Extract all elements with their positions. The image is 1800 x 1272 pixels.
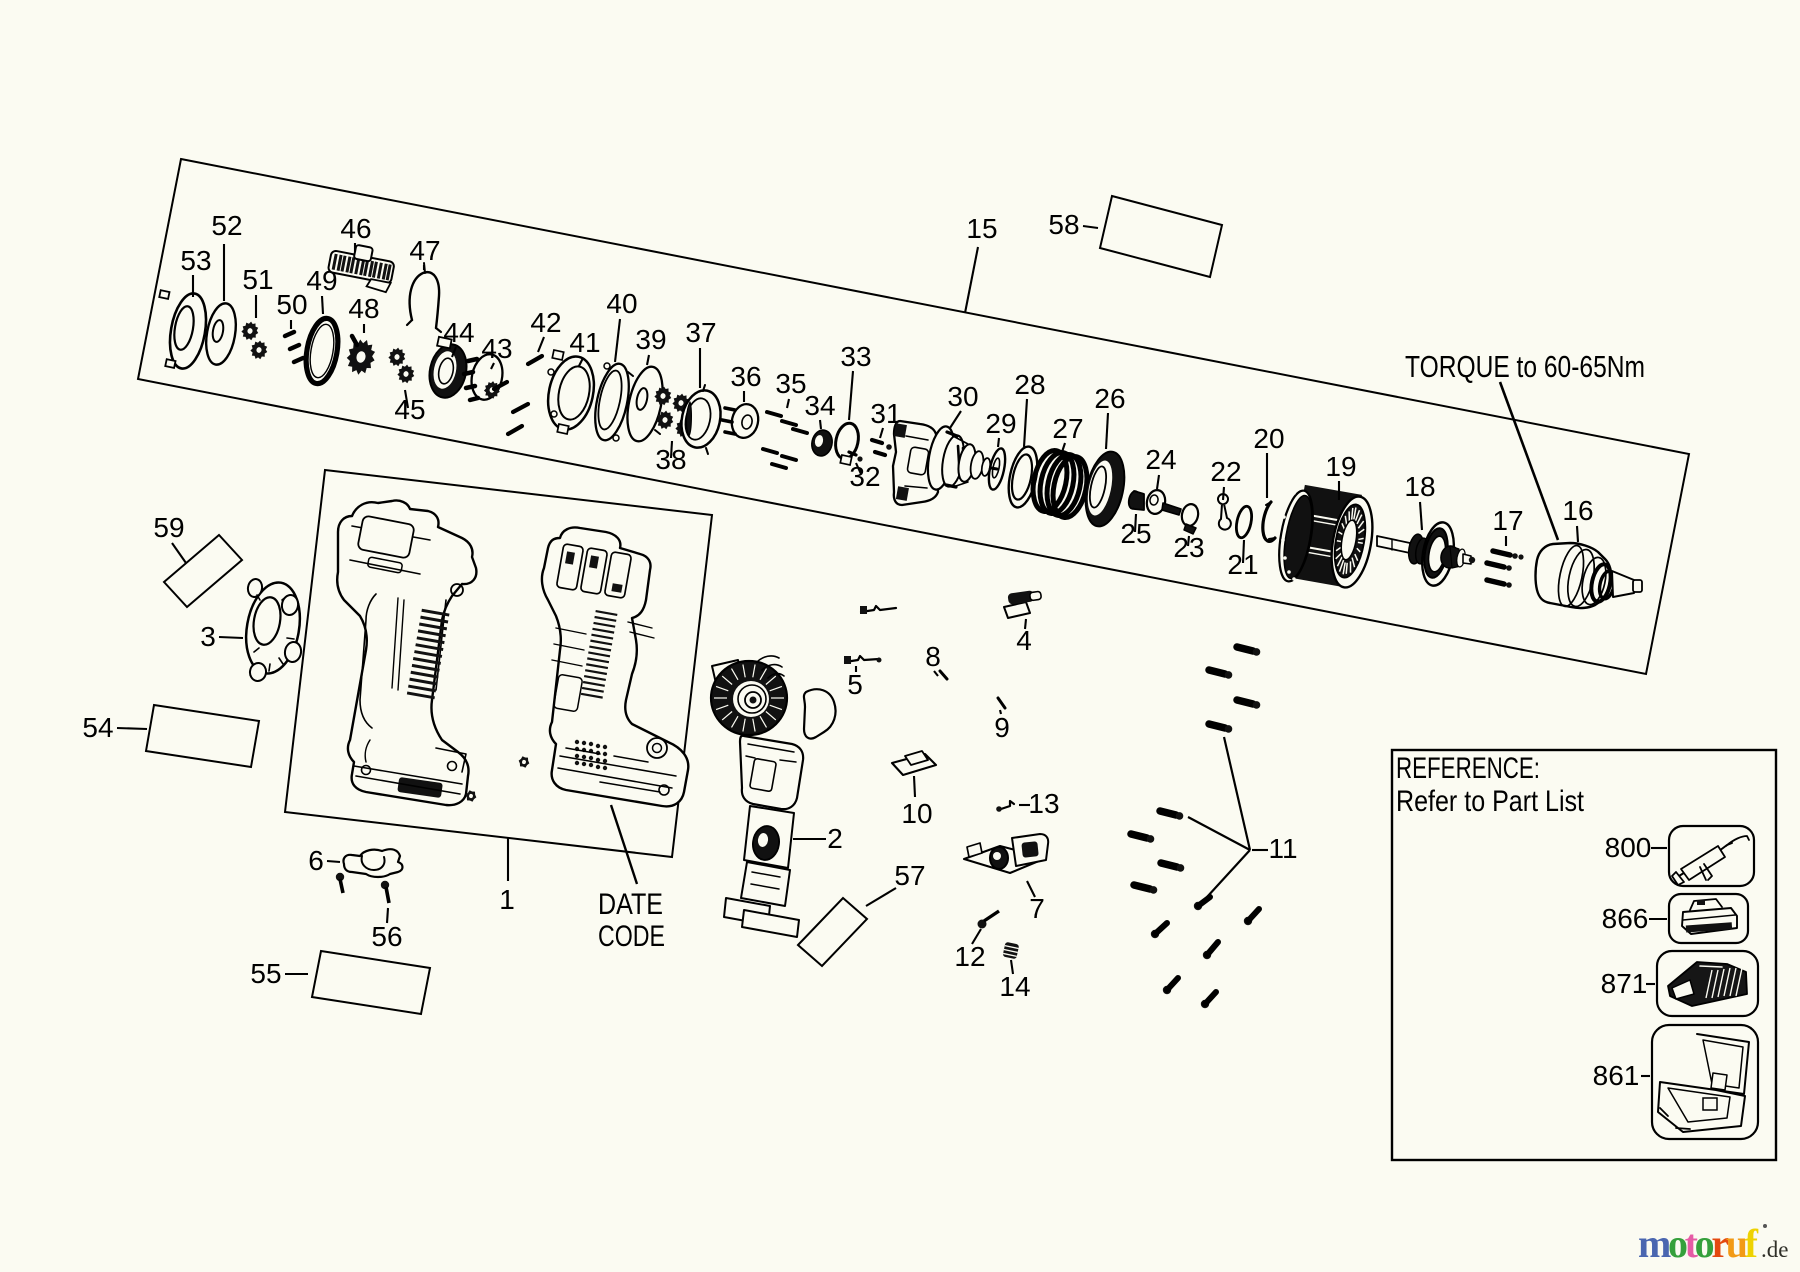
svg-text:3: 3 [200,621,216,652]
svg-text:18: 18 [1404,471,1435,502]
svg-text:13: 13 [1028,788,1059,819]
svg-text:30: 30 [947,381,978,412]
svg-text:35: 35 [775,368,806,399]
svg-text:51: 51 [242,264,273,295]
svg-text:CODE: CODE [598,920,665,953]
svg-text:29: 29 [985,408,1016,439]
svg-text:15: 15 [966,213,997,244]
svg-text:24: 24 [1145,444,1176,475]
svg-text:52: 52 [211,210,242,241]
svg-text:37: 37 [685,317,716,348]
svg-text:8: 8 [925,641,941,672]
svg-text:27: 27 [1052,413,1083,444]
svg-text:REFERENCE:: REFERENCE: [1396,752,1540,785]
svg-text:14: 14 [999,971,1030,1002]
svg-text:7: 7 [1029,893,1045,924]
svg-text:59: 59 [153,512,184,543]
svg-text:45: 45 [394,394,425,425]
svg-text:4: 4 [1016,625,1032,656]
svg-text:26: 26 [1094,383,1125,414]
svg-text:46: 46 [340,213,371,244]
svg-text:56: 56 [371,921,402,952]
svg-text:34: 34 [804,390,835,421]
svg-text:33: 33 [840,341,871,372]
svg-text:22: 22 [1210,456,1241,487]
svg-text:17: 17 [1492,505,1523,536]
svg-text:44: 44 [443,317,474,348]
svg-text:55: 55 [250,958,281,989]
svg-text:Refer to Part List: Refer to Part List [1396,785,1585,818]
svg-text:20: 20 [1253,423,1284,454]
svg-text:42: 42 [530,307,561,338]
svg-text:39: 39 [635,324,666,355]
svg-text:2: 2 [827,823,843,854]
svg-text:50: 50 [276,289,307,320]
svg-text:28: 28 [1014,369,1045,400]
svg-text:6: 6 [308,845,324,876]
svg-text:DATE: DATE [598,888,663,921]
svg-text:10: 10 [901,798,932,829]
svg-text:1: 1 [499,884,515,915]
svg-text:motoruf: motoruf [1638,1221,1759,1266]
svg-text:12: 12 [954,941,985,972]
svg-text:16: 16 [1562,495,1593,526]
svg-text:53: 53 [180,245,211,276]
svg-text:54: 54 [82,712,113,743]
svg-text:19: 19 [1325,451,1356,482]
svg-text:40: 40 [606,288,637,319]
svg-text:47: 47 [409,235,440,266]
svg-text:5: 5 [847,669,863,700]
svg-text:866: 866 [1602,903,1649,934]
svg-text:32: 32 [849,461,880,492]
svg-text:58: 58 [1048,209,1079,240]
svg-text:48: 48 [348,293,379,324]
svg-text:871: 871 [1601,968,1648,999]
svg-text:.de: .de [1761,1237,1788,1262]
svg-text:TORQUE to 60-65Nm: TORQUE to 60-65Nm [1405,349,1645,384]
svg-text:41: 41 [569,327,600,358]
svg-text:11: 11 [1268,833,1297,864]
svg-text:9: 9 [994,712,1010,743]
svg-text:800: 800 [1605,832,1652,863]
svg-text:861: 861 [1593,1060,1640,1091]
svg-text:36: 36 [730,361,761,392]
svg-text:43: 43 [481,333,512,364]
svg-text:57: 57 [894,860,925,891]
